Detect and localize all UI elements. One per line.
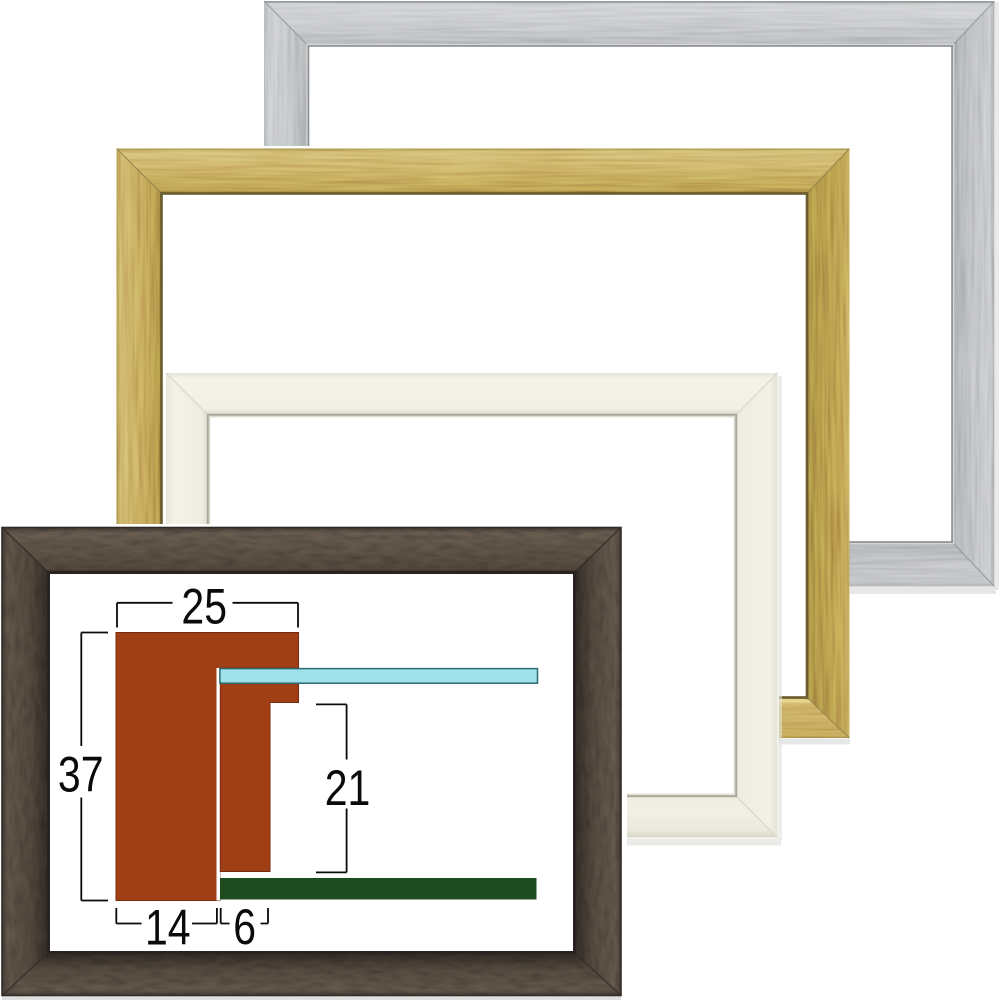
svg-text:6: 6	[233, 899, 256, 955]
svg-text:21: 21	[325, 760, 371, 816]
svg-text:14: 14	[145, 900, 191, 956]
svg-text:25: 25	[181, 579, 227, 635]
svg-text:37: 37	[58, 747, 104, 803]
